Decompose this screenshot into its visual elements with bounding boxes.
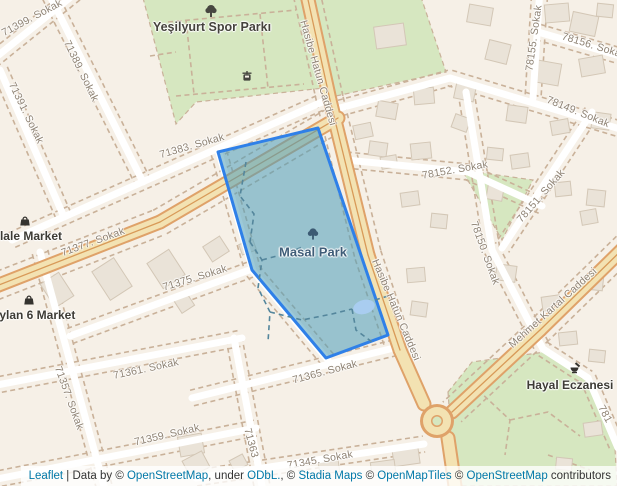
odbl-link[interactable]: ODbL. bbox=[247, 470, 280, 482]
attribution-text: © bbox=[452, 470, 467, 482]
attribution-text: , © bbox=[280, 470, 298, 482]
attribution-bar: Leaflet | Data by © OpenStreetMap, under… bbox=[21, 466, 617, 486]
roundabout bbox=[420, 404, 454, 438]
map-tiles bbox=[0, 0, 617, 486]
map-canvas[interactable]: 71399. Sokak 71389. Sokak 71391. Sokak 7… bbox=[0, 0, 617, 486]
leaflet-link[interactable]: Leaflet bbox=[29, 470, 64, 482]
openstreetmap-link[interactable]: OpenStreetMap bbox=[127, 470, 208, 482]
openstreetmap-link[interactable]: OpenStreetMap bbox=[467, 470, 548, 482]
attribution-text: , under bbox=[208, 470, 247, 482]
stadia-maps-link[interactable]: Stadia Maps bbox=[298, 470, 362, 482]
attribution-text: contributors bbox=[548, 470, 611, 482]
openmaptiles-link[interactable]: OpenMapTiles bbox=[377, 470, 451, 482]
attribution-text: | Data by © bbox=[63, 470, 127, 482]
attribution-text: © bbox=[362, 470, 377, 482]
